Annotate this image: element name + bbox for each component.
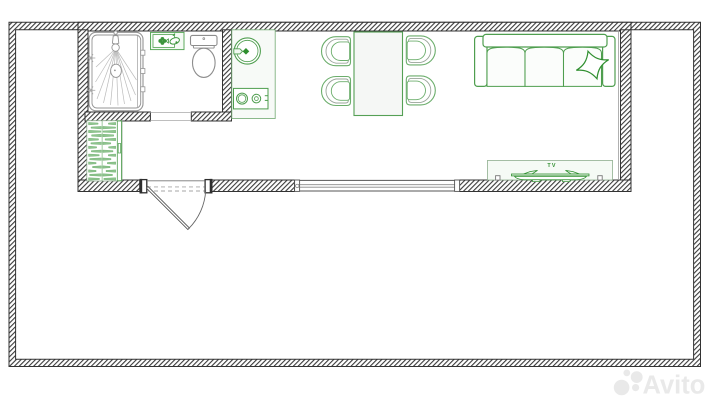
svg-text:TV: TV <box>547 163 556 169</box>
svg-text:Avito: Avito <box>643 372 706 400</box>
